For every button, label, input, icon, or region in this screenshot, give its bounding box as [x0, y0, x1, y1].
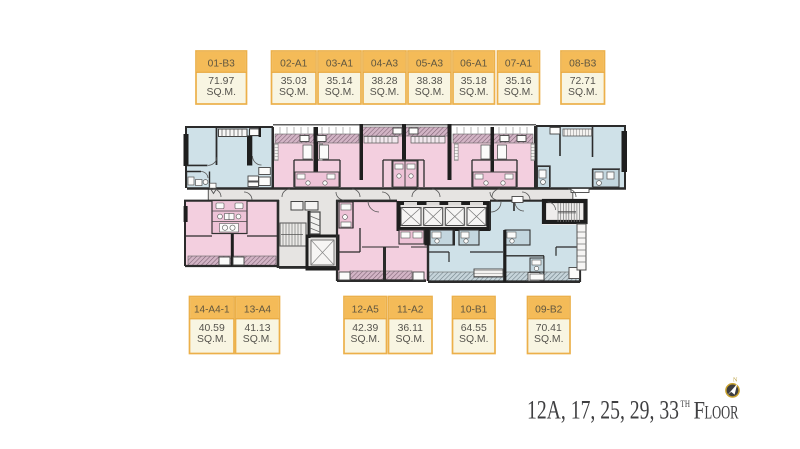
svg-text:SQ.M.: SQ.M. [568, 87, 597, 98]
svg-text:SQ.M.: SQ.M. [243, 334, 272, 345]
svg-text:SQ.M.: SQ.M. [197, 334, 226, 345]
svg-text:64.55: 64.55 [461, 323, 487, 334]
svg-text:06-A1: 06-A1 [460, 58, 488, 69]
svg-text:TH: TH [681, 399, 691, 409]
svg-text:03-A1: 03-A1 [326, 58, 354, 69]
svg-text:08-B3: 08-B3 [569, 58, 597, 69]
svg-text:13-A4: 13-A4 [244, 304, 272, 315]
svg-text:12A, 17, 25, 29, 33: 12A, 17, 25, 29, 33 [527, 396, 679, 425]
svg-text:05-A3: 05-A3 [416, 58, 444, 69]
svg-text:35.14: 35.14 [326, 76, 352, 87]
svg-text:SQ.M.: SQ.M. [325, 87, 354, 98]
svg-text:01-B3: 01-B3 [208, 58, 236, 69]
svg-text:SQ.M.: SQ.M. [207, 87, 236, 98]
svg-text:10-B1: 10-B1 [460, 304, 488, 315]
svg-text:72.71: 72.71 [570, 76, 596, 87]
svg-text:40.59: 40.59 [199, 323, 225, 334]
svg-text:SQ.M.: SQ.M. [504, 87, 533, 98]
svg-text:36.11: 36.11 [398, 323, 423, 334]
svg-text:02-A1: 02-A1 [280, 58, 308, 69]
svg-text:SQ.M.: SQ.M. [351, 334, 380, 345]
svg-text:09-B2: 09-B2 [535, 304, 563, 315]
svg-text:SQ.M.: SQ.M. [279, 87, 308, 98]
svg-text:SQ.M.: SQ.M. [396, 334, 425, 345]
svg-text:70.41: 70.41 [536, 323, 562, 334]
svg-text:35.03: 35.03 [281, 76, 307, 87]
svg-text:SQ.M.: SQ.M. [534, 334, 563, 345]
svg-text:LOOR: LOOR [705, 404, 739, 424]
svg-text:04-A3: 04-A3 [371, 58, 399, 69]
svg-text:SQ.M.: SQ.M. [459, 87, 488, 98]
svg-text:N: N [733, 378, 738, 384]
svg-text:41.13: 41.13 [244, 323, 270, 334]
svg-text:35.16: 35.16 [505, 76, 531, 87]
svg-text:07-A1: 07-A1 [505, 58, 533, 69]
svg-text:SQ.M.: SQ.M. [459, 334, 488, 345]
svg-text:71.97: 71.97 [208, 76, 234, 87]
svg-text:42.39: 42.39 [352, 323, 378, 334]
svg-text:38.38: 38.38 [416, 76, 442, 87]
svg-text:35.18: 35.18 [461, 76, 487, 87]
svg-text:SQ.M.: SQ.M. [415, 87, 444, 98]
svg-text:38.28: 38.28 [371, 76, 397, 87]
svg-text:14-A4-1: 14-A4-1 [194, 304, 230, 315]
svg-text:SQ.M.: SQ.M. [370, 87, 399, 98]
svg-text:12-A5: 12-A5 [352, 304, 380, 315]
svg-text:11-A2: 11-A2 [397, 304, 424, 315]
svg-text:F: F [694, 398, 706, 425]
